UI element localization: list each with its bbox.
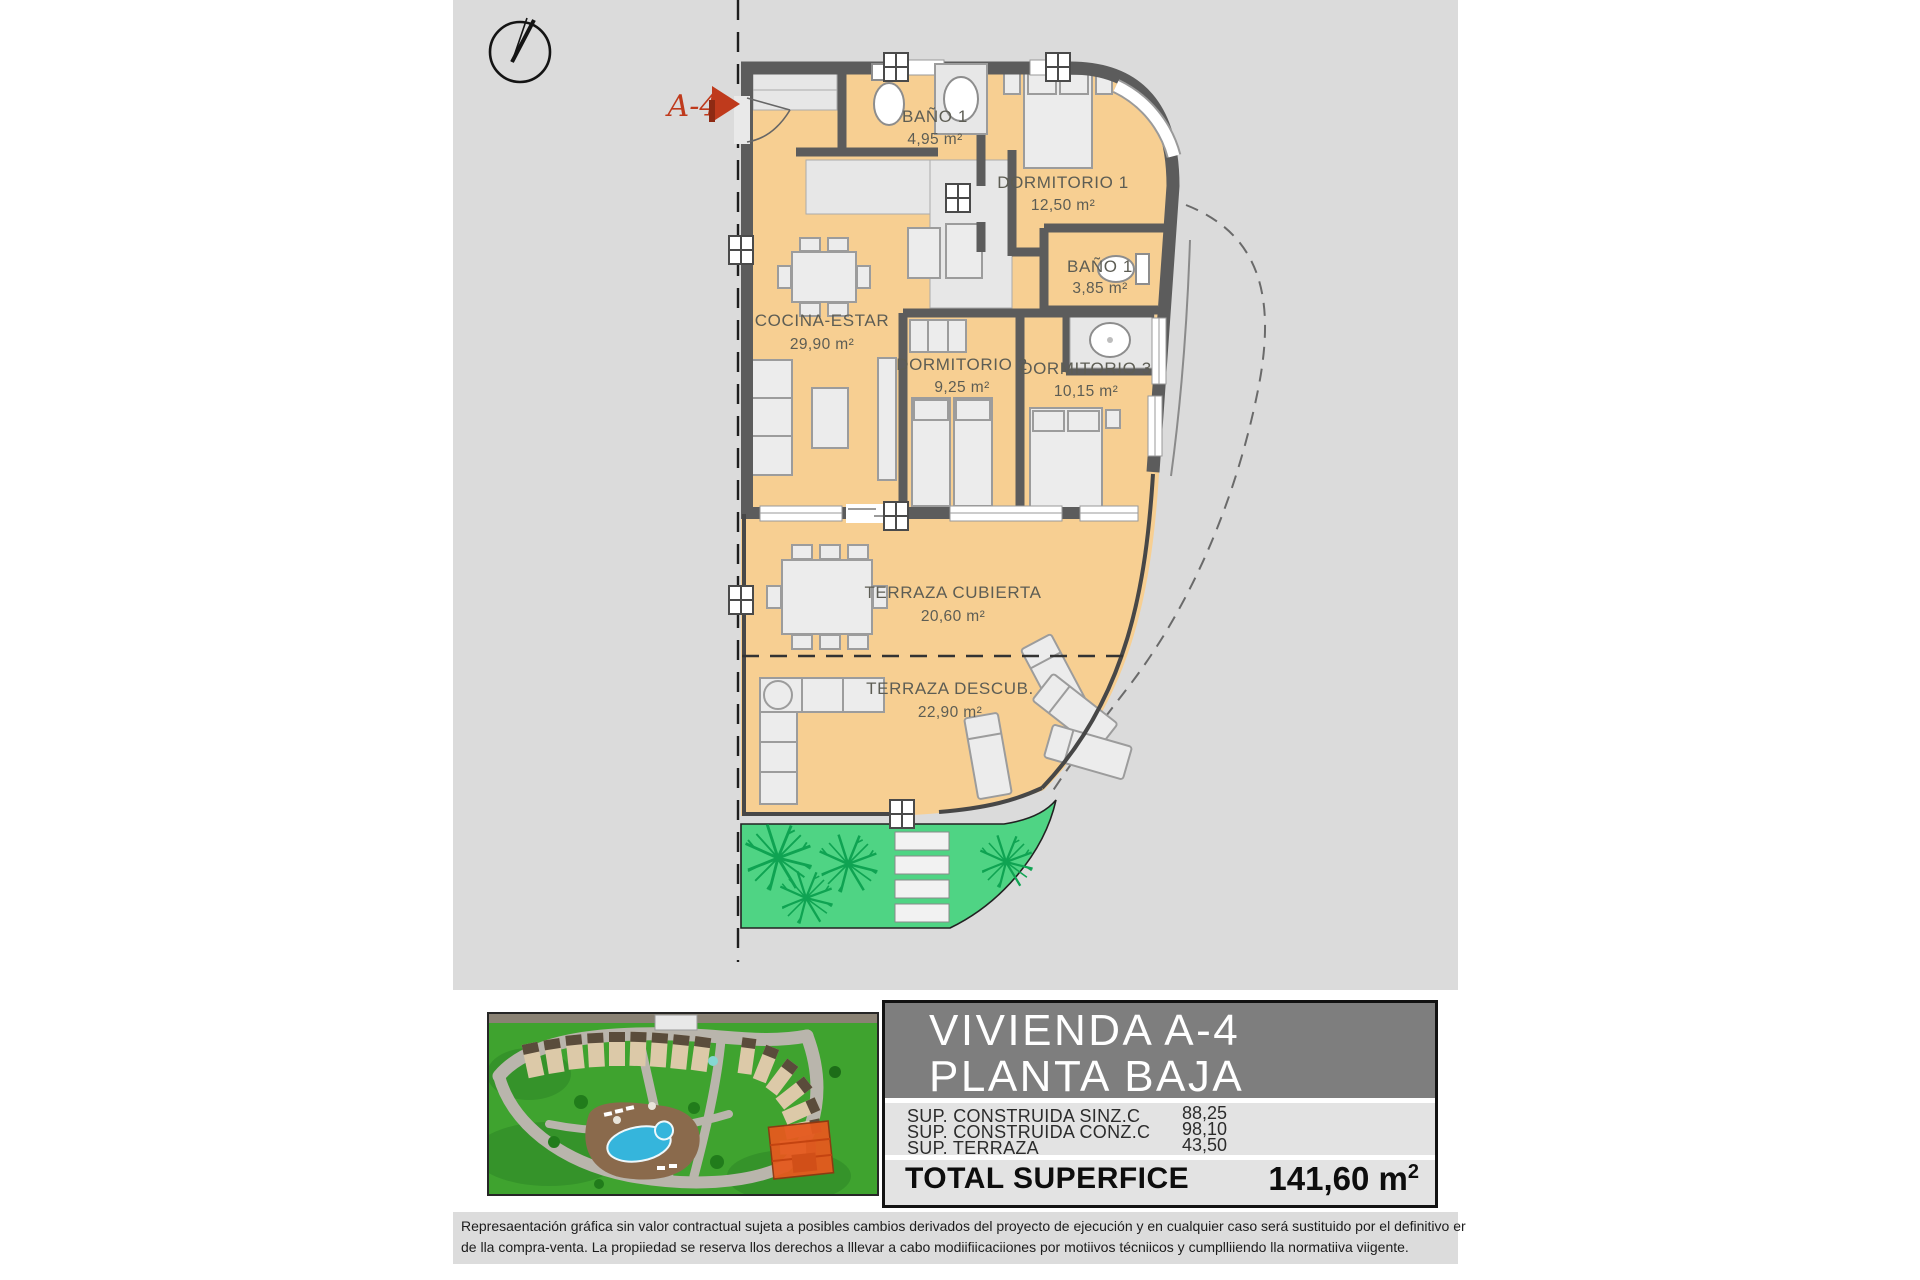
site-plan-graphic: [489, 1014, 877, 1194]
room-label-cocina: COCINA-ESTAR: [755, 311, 889, 330]
room-label-bano2: BAÑO 1: [1067, 257, 1133, 276]
panel-header: VIVIENDA A-4 PLANTA BAJA: [885, 1003, 1435, 1103]
room-area-terraza-descub: 22,90 m²: [918, 704, 982, 721]
room-label-dormitorio3: DORMITORIO 3: [1020, 359, 1152, 378]
panel-total-row: TOTAL SUPERFICE 141,60 m2: [885, 1160, 1435, 1198]
floor-plan-drawing: BAÑO 1 4,95 m² DORMITORIO 1 12,50 m² BAÑ…: [0, 0, 1920, 990]
room-area-dormitorio3: 10,15 m²: [1054, 383, 1118, 400]
disclaimer-strip: Represaentación gráfica sin valor contra…: [453, 1212, 1458, 1264]
pool-area: [585, 1102, 699, 1180]
kitchen-units: [908, 224, 982, 278]
room-area-dormitorio1: 12,50 m²: [1031, 197, 1095, 214]
total-label: TOTAL SUPERFICE: [905, 1162, 1189, 1196]
room-label-terraza-cubierta: TERRAZA CUBIERTA: [864, 583, 1041, 602]
room-area-terraza-cubierta: 20,60 m²: [921, 608, 985, 625]
floor-plan-page: BAÑO 1 4,95 m² DORMITORIO 1 12,50 m² BAÑ…: [0, 0, 1920, 1280]
disclaimer-text: Represaentación gráfica sin valor contra…: [461, 1216, 1503, 1258]
fountain-dot: [708, 1056, 718, 1066]
room-label-terraza-descub: TERRAZA DESCUB.: [866, 679, 1034, 698]
total-value-superscript: 2: [1408, 1161, 1419, 1183]
site-plan-thumbnail: [487, 1012, 879, 1196]
surface-row-label: SUP. TERRAZA: [907, 1140, 1435, 1156]
entrance-building: [655, 1015, 697, 1030]
room-label-dormitorio1: DORMITORIO 1: [997, 173, 1129, 192]
disclaimer-line1: Represaentación gráfica sin valor contra…: [461, 1216, 1503, 1237]
total-value: 141,60 m2: [1268, 1160, 1419, 1198]
panel-title-line2: PLANTA BAJA: [929, 1054, 1435, 1100]
highlighted-unit-a4: [768, 1121, 833, 1179]
disclaimer-line2: de lla compra-venta. La propiiedad se re…: [461, 1237, 1503, 1258]
panel-surface-rows: SUP. CONSTRUIDA SINZ.C SUP. CONSTRUIDA C…: [885, 1103, 1435, 1160]
total-value-number: 141,60 m: [1268, 1160, 1407, 1197]
panel-title-line1: VIVIENDA A-4: [929, 1008, 1435, 1054]
room-area-cocina: 29,90 m²: [790, 336, 854, 353]
room-label-bano1: BAÑO 1: [902, 107, 968, 126]
room-area-bano1: 4,95 m²: [907, 131, 962, 148]
entrance-arrow-shadow: [709, 100, 715, 122]
info-panel: VIVIENDA A-4 PLANTA BAJA SUP. CONSTRUIDA…: [882, 1000, 1438, 1208]
room-area-bano2: 3,85 m²: [1072, 280, 1127, 297]
sink-bano-2: [1090, 323, 1130, 357]
surface-row-value: 43,50: [1182, 1137, 1227, 1153]
room-area-dormitorio2: 9,25 m²: [934, 379, 989, 396]
room-label-dormitorio2: DORMITORIO 2: [896, 355, 1028, 374]
